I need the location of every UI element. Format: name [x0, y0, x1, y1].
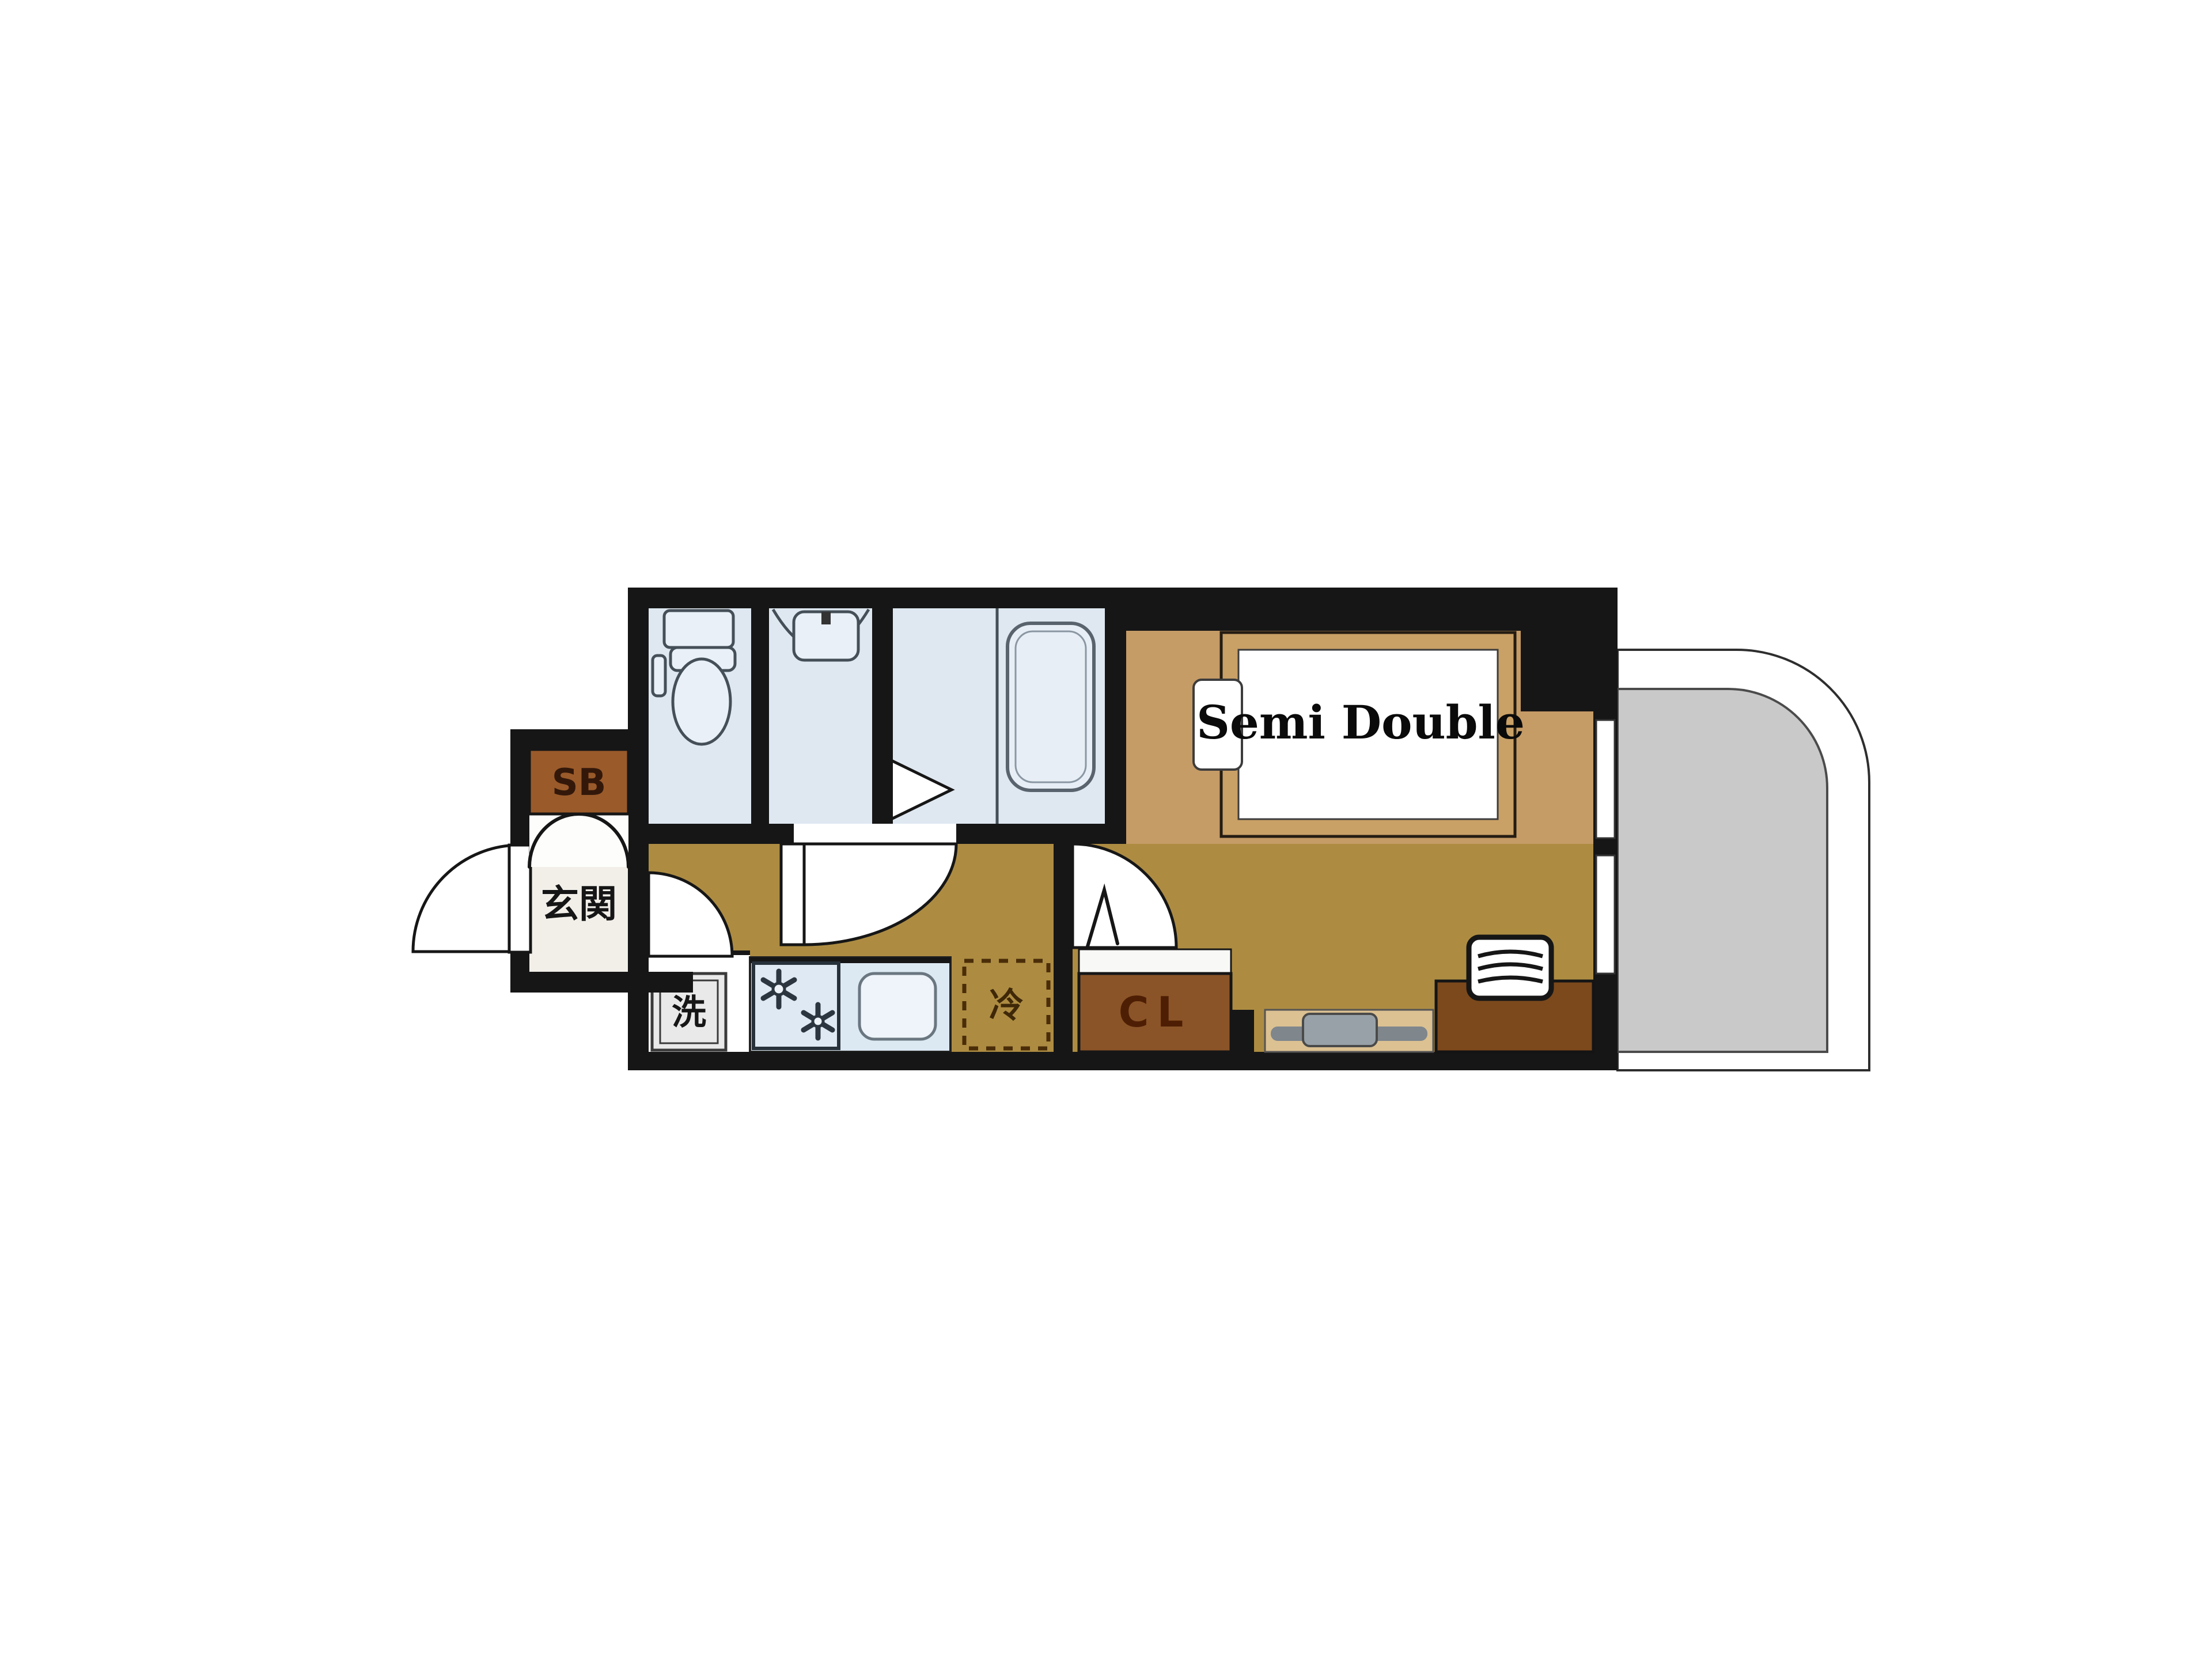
wall-toilet-washroom	[751, 608, 769, 824]
chair	[1469, 937, 1551, 998]
closet-label: CL	[1119, 988, 1192, 1036]
shoebox-label: SB	[552, 762, 607, 804]
floor-plan-canvas: SB 玄関 洗 冷 CL Semi Double	[0, 0, 2212, 1659]
entrance-door-arc	[413, 845, 520, 952]
tv-board	[1265, 1010, 1433, 1052]
entrance-door-leaf	[509, 845, 531, 952]
wall-left	[628, 588, 649, 1070]
fridge-label: 冷	[989, 986, 1024, 1026]
washer-label: 洗	[672, 993, 706, 1033]
bathroom-doorway	[872, 824, 956, 844]
wall-bath-bedroom	[1105, 588, 1126, 844]
wall-closet-stub	[1231, 1010, 1254, 1055]
wall-bottom	[628, 1052, 1618, 1070]
balcony-floor	[1618, 689, 1827, 1052]
shoebox-door-area	[529, 814, 628, 867]
window-balcony-lower	[1596, 855, 1615, 974]
bathtub-icon	[1007, 623, 1094, 790]
wall-kitchen-room	[1054, 824, 1073, 1070]
tv	[1303, 1014, 1377, 1046]
entrance-label: 玄関	[541, 882, 617, 926]
wall-entry-bottom	[510, 972, 693, 993]
window-balcony-upper	[1596, 720, 1615, 838]
sink	[859, 974, 935, 1039]
balcony	[1618, 650, 1869, 1070]
wall-entry-top	[510, 729, 649, 749]
floor-plan-page: SB 玄関 洗 冷 CL Semi Double	[0, 0, 2212, 1659]
stove-unit	[753, 963, 839, 1048]
closet-door-track	[1079, 949, 1231, 974]
wall-washroom-bath	[872, 608, 893, 824]
wall-corridor-north-a	[649, 824, 794, 844]
wall-corridor-north-b	[956, 824, 1126, 844]
wall-top-left	[628, 588, 1126, 608]
washroom-door-leaf	[781, 844, 804, 945]
bed-label: Semi Double	[1196, 695, 1525, 749]
